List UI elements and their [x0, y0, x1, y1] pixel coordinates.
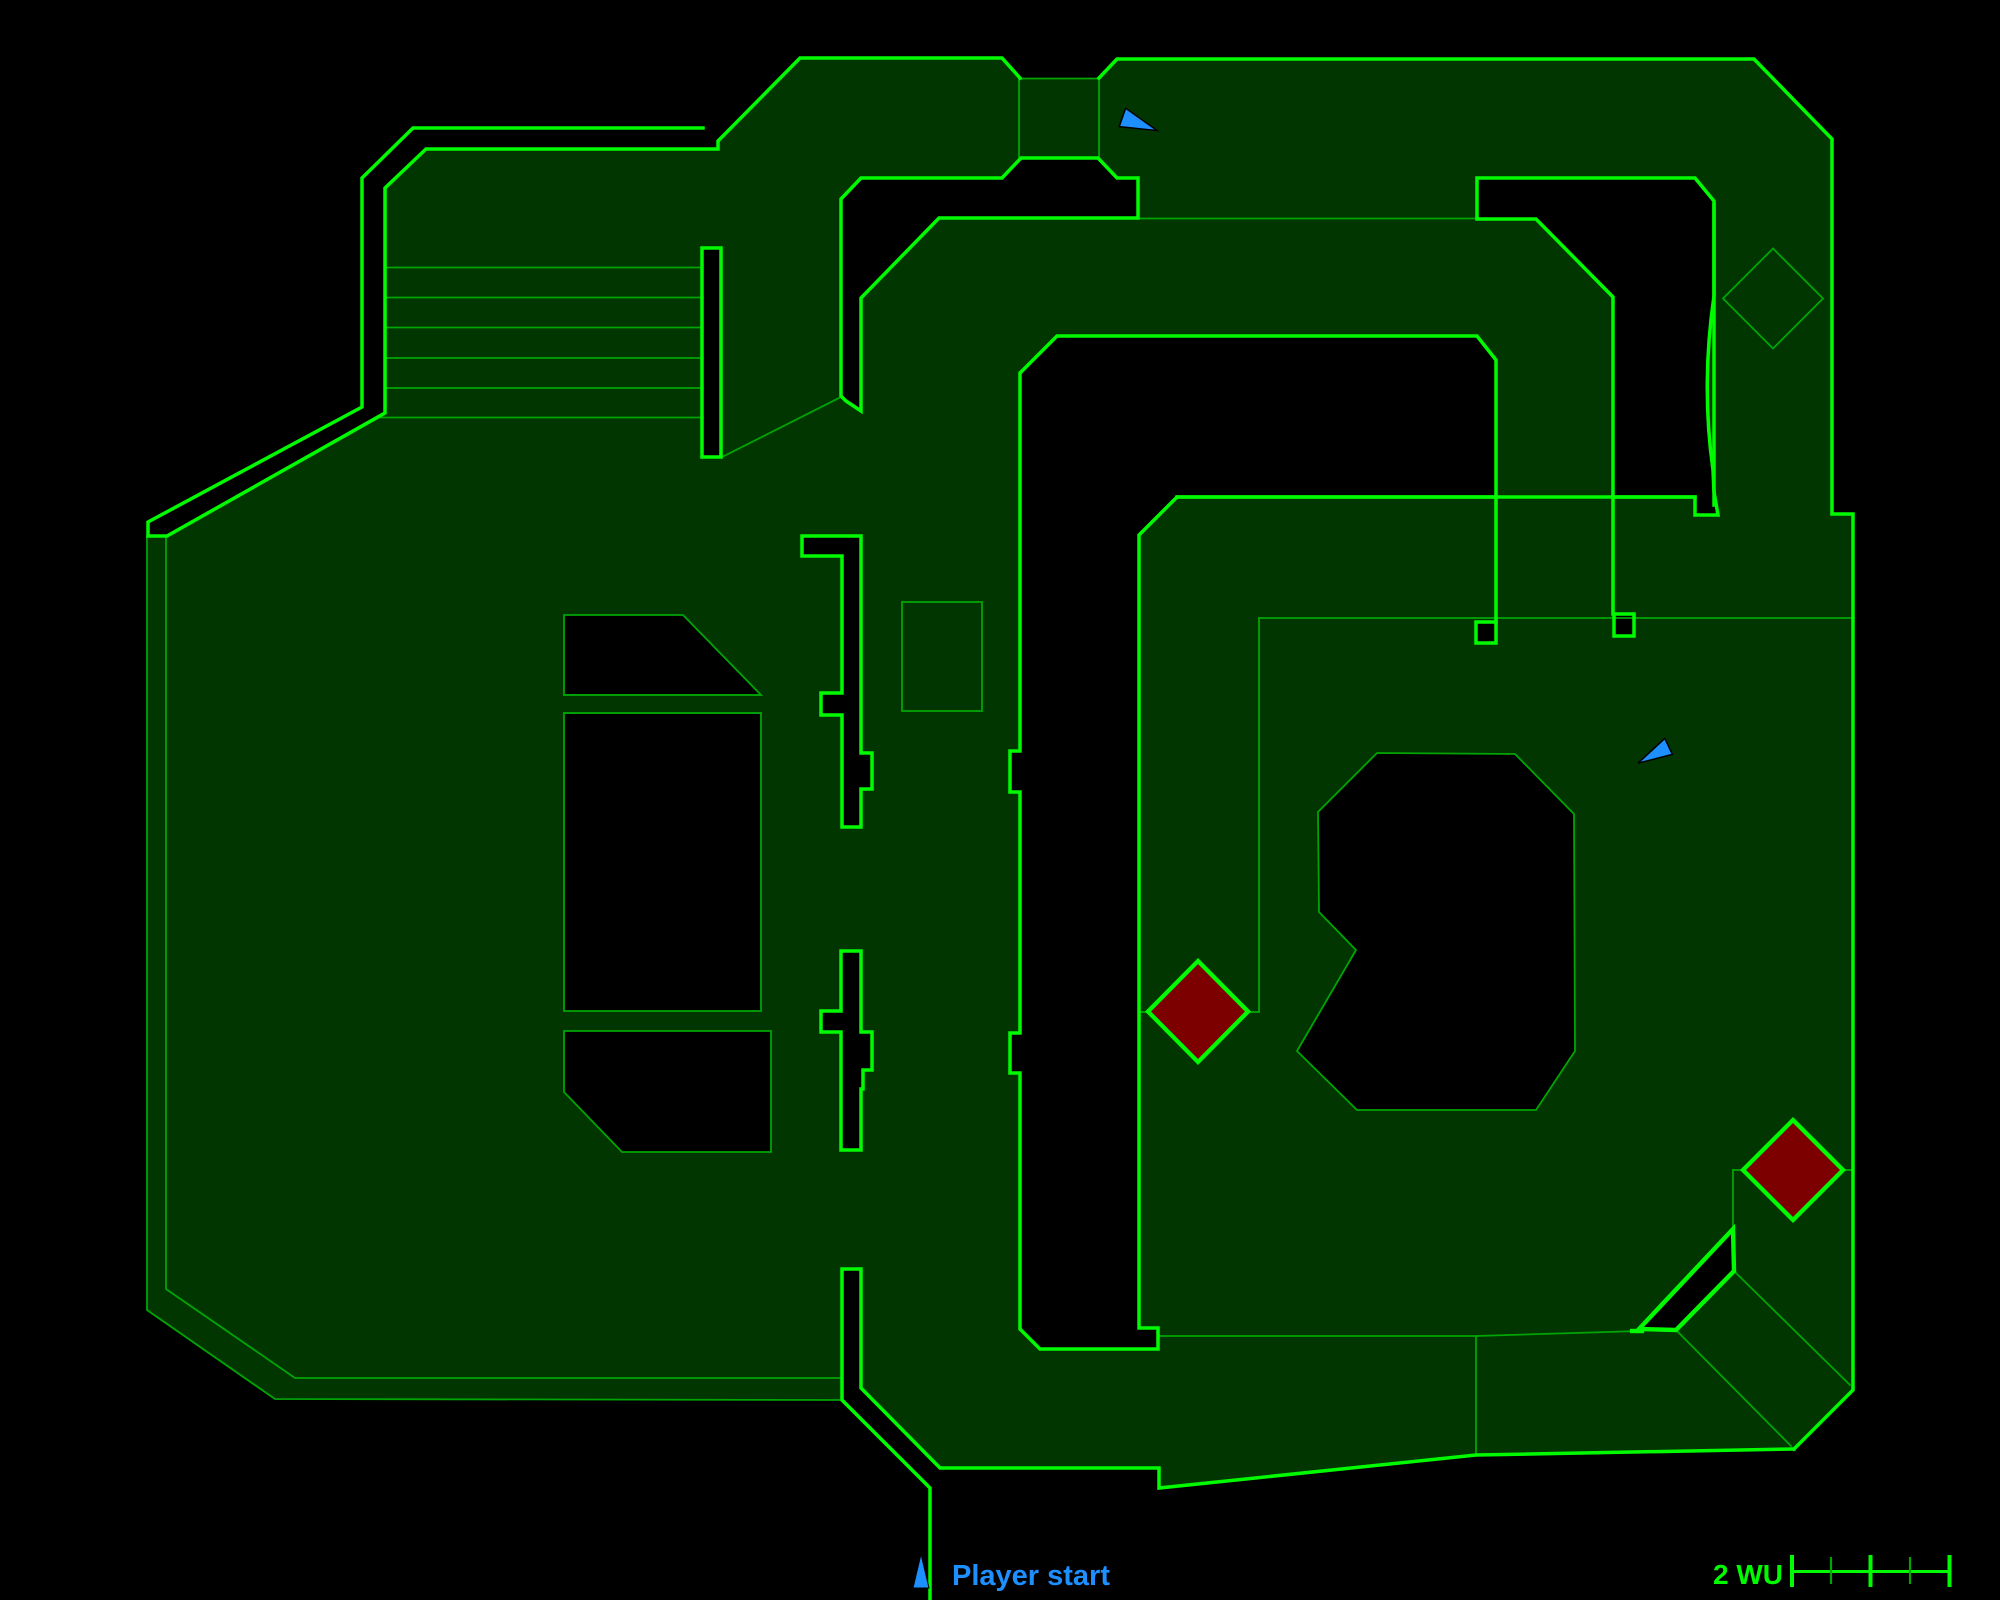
svg-text:2 WU: 2 WU	[1713, 1559, 1783, 1590]
svg-text:Player start: Player start	[952, 1560, 1110, 1592]
